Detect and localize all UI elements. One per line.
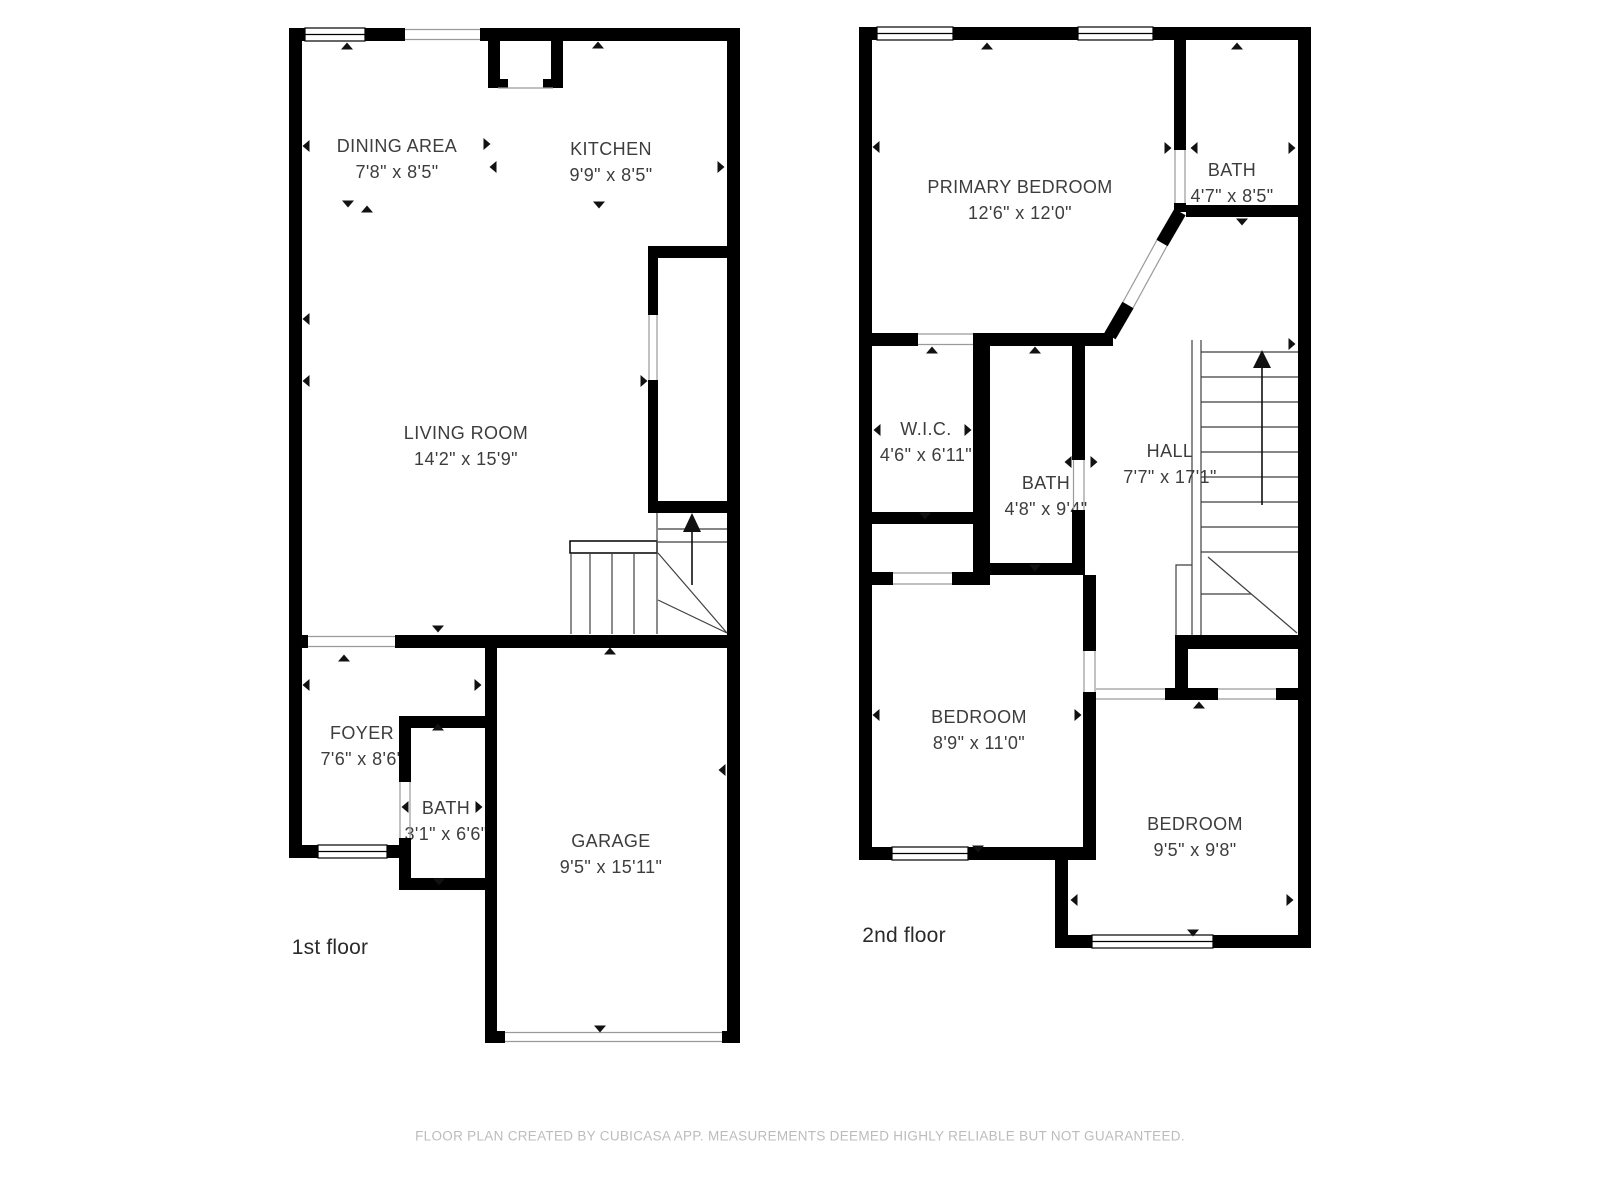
room-label-garage: GARAGE 9'5" x 15'11" xyxy=(560,828,663,880)
room-name: PRIMARY BEDROOM xyxy=(927,174,1112,200)
room-dims: 4'8" x 9'4" xyxy=(1004,496,1087,522)
room-name: BATH xyxy=(404,795,487,821)
floor-plan-page: DINING AREA 7'8" x 8'5" KITCHEN 9'9" x 8… xyxy=(0,0,1600,1200)
room-label-bath-upper: BATH 4'7" x 8'5" xyxy=(1190,157,1273,209)
room-name: BEDROOM xyxy=(1147,811,1243,837)
room-name: BATH xyxy=(1190,157,1273,183)
room-label-living-room: LIVING ROOM 14'2" x 15'9" xyxy=(404,420,528,472)
room-label-kitchen: KITCHEN 9'9" x 8'5" xyxy=(569,136,652,188)
room-dims: 9'5" x 15'11" xyxy=(560,854,663,880)
room-dims: 4'6" x 6'11" xyxy=(880,442,972,468)
room-dims: 12'6" x 12'0" xyxy=(927,200,1112,226)
room-label-dining-area: DINING AREA 7'8" x 8'5" xyxy=(337,133,457,185)
room-dims: 9'5" x 9'8" xyxy=(1147,837,1243,863)
room-name: FOYER xyxy=(320,720,403,746)
room-name: GARAGE xyxy=(560,828,663,854)
room-label-primary-bedroom: PRIMARY BEDROOM 12'6" x 12'0" xyxy=(927,174,1112,226)
room-name: HALL xyxy=(1123,438,1217,464)
room-dims: 4'7" x 8'5" xyxy=(1190,183,1273,209)
room-label-bedroom-left: BEDROOM 8'9" x 11'0" xyxy=(931,704,1027,756)
room-label-hall: HALL 7'7" x 17'1" xyxy=(1123,438,1217,490)
room-name: LIVING ROOM xyxy=(404,420,528,446)
room-dims: 3'1" x 6'6" xyxy=(404,821,487,847)
disclaimer-text: FLOOR PLAN CREATED BY CUBICASA APP. MEAS… xyxy=(415,1129,1185,1144)
room-name: DINING AREA xyxy=(337,133,457,159)
room-dims: 7'8" x 8'5" xyxy=(337,159,457,185)
room-name: W.I.C. xyxy=(880,416,972,442)
room-dims: 9'9" x 8'5" xyxy=(569,162,652,188)
room-dims: 14'2" x 15'9" xyxy=(404,446,528,472)
room-label-foyer: FOYER 7'6" x 8'6" xyxy=(320,720,403,772)
room-name: BEDROOM xyxy=(931,704,1027,730)
room-name: KITCHEN xyxy=(569,136,652,162)
room-name: BATH xyxy=(1004,470,1087,496)
room-dims: 7'6" x 8'6" xyxy=(320,746,403,772)
room-label-bath-mid: BATH 4'8" x 9'4" xyxy=(1004,470,1087,522)
room-label-bath-1f: BATH 3'1" x 6'6" xyxy=(404,795,487,847)
room-dims: 8'9" x 11'0" xyxy=(931,730,1027,756)
floor-caption-1st: 1st floor xyxy=(292,936,369,960)
room-label-bedroom-right: BEDROOM 9'5" x 9'8" xyxy=(1147,811,1243,863)
labels-layer: DINING AREA 7'8" x 8'5" KITCHEN 9'9" x 8… xyxy=(0,0,1600,1200)
room-label-wic: W.I.C. 4'6" x 6'11" xyxy=(880,416,972,468)
floor-caption-2nd: 2nd floor xyxy=(862,924,946,948)
room-dims: 7'7" x 17'1" xyxy=(1123,464,1217,490)
